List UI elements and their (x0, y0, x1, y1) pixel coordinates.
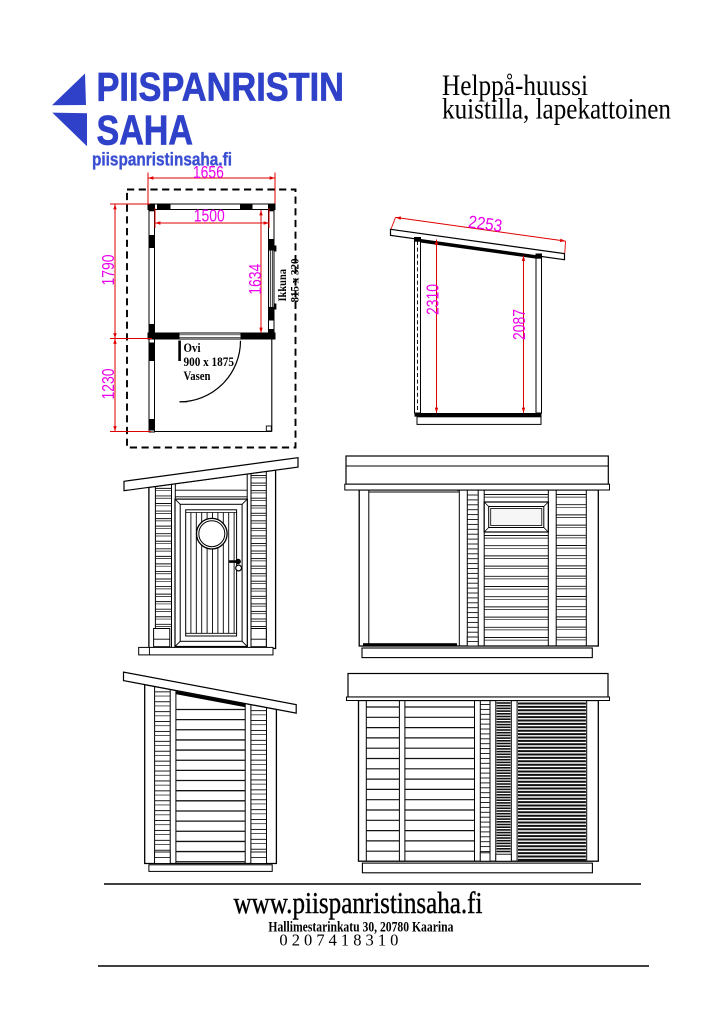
svg-text:www.piispanristinsaha.fi: www.piispanristinsaha.fi (234, 885, 483, 920)
